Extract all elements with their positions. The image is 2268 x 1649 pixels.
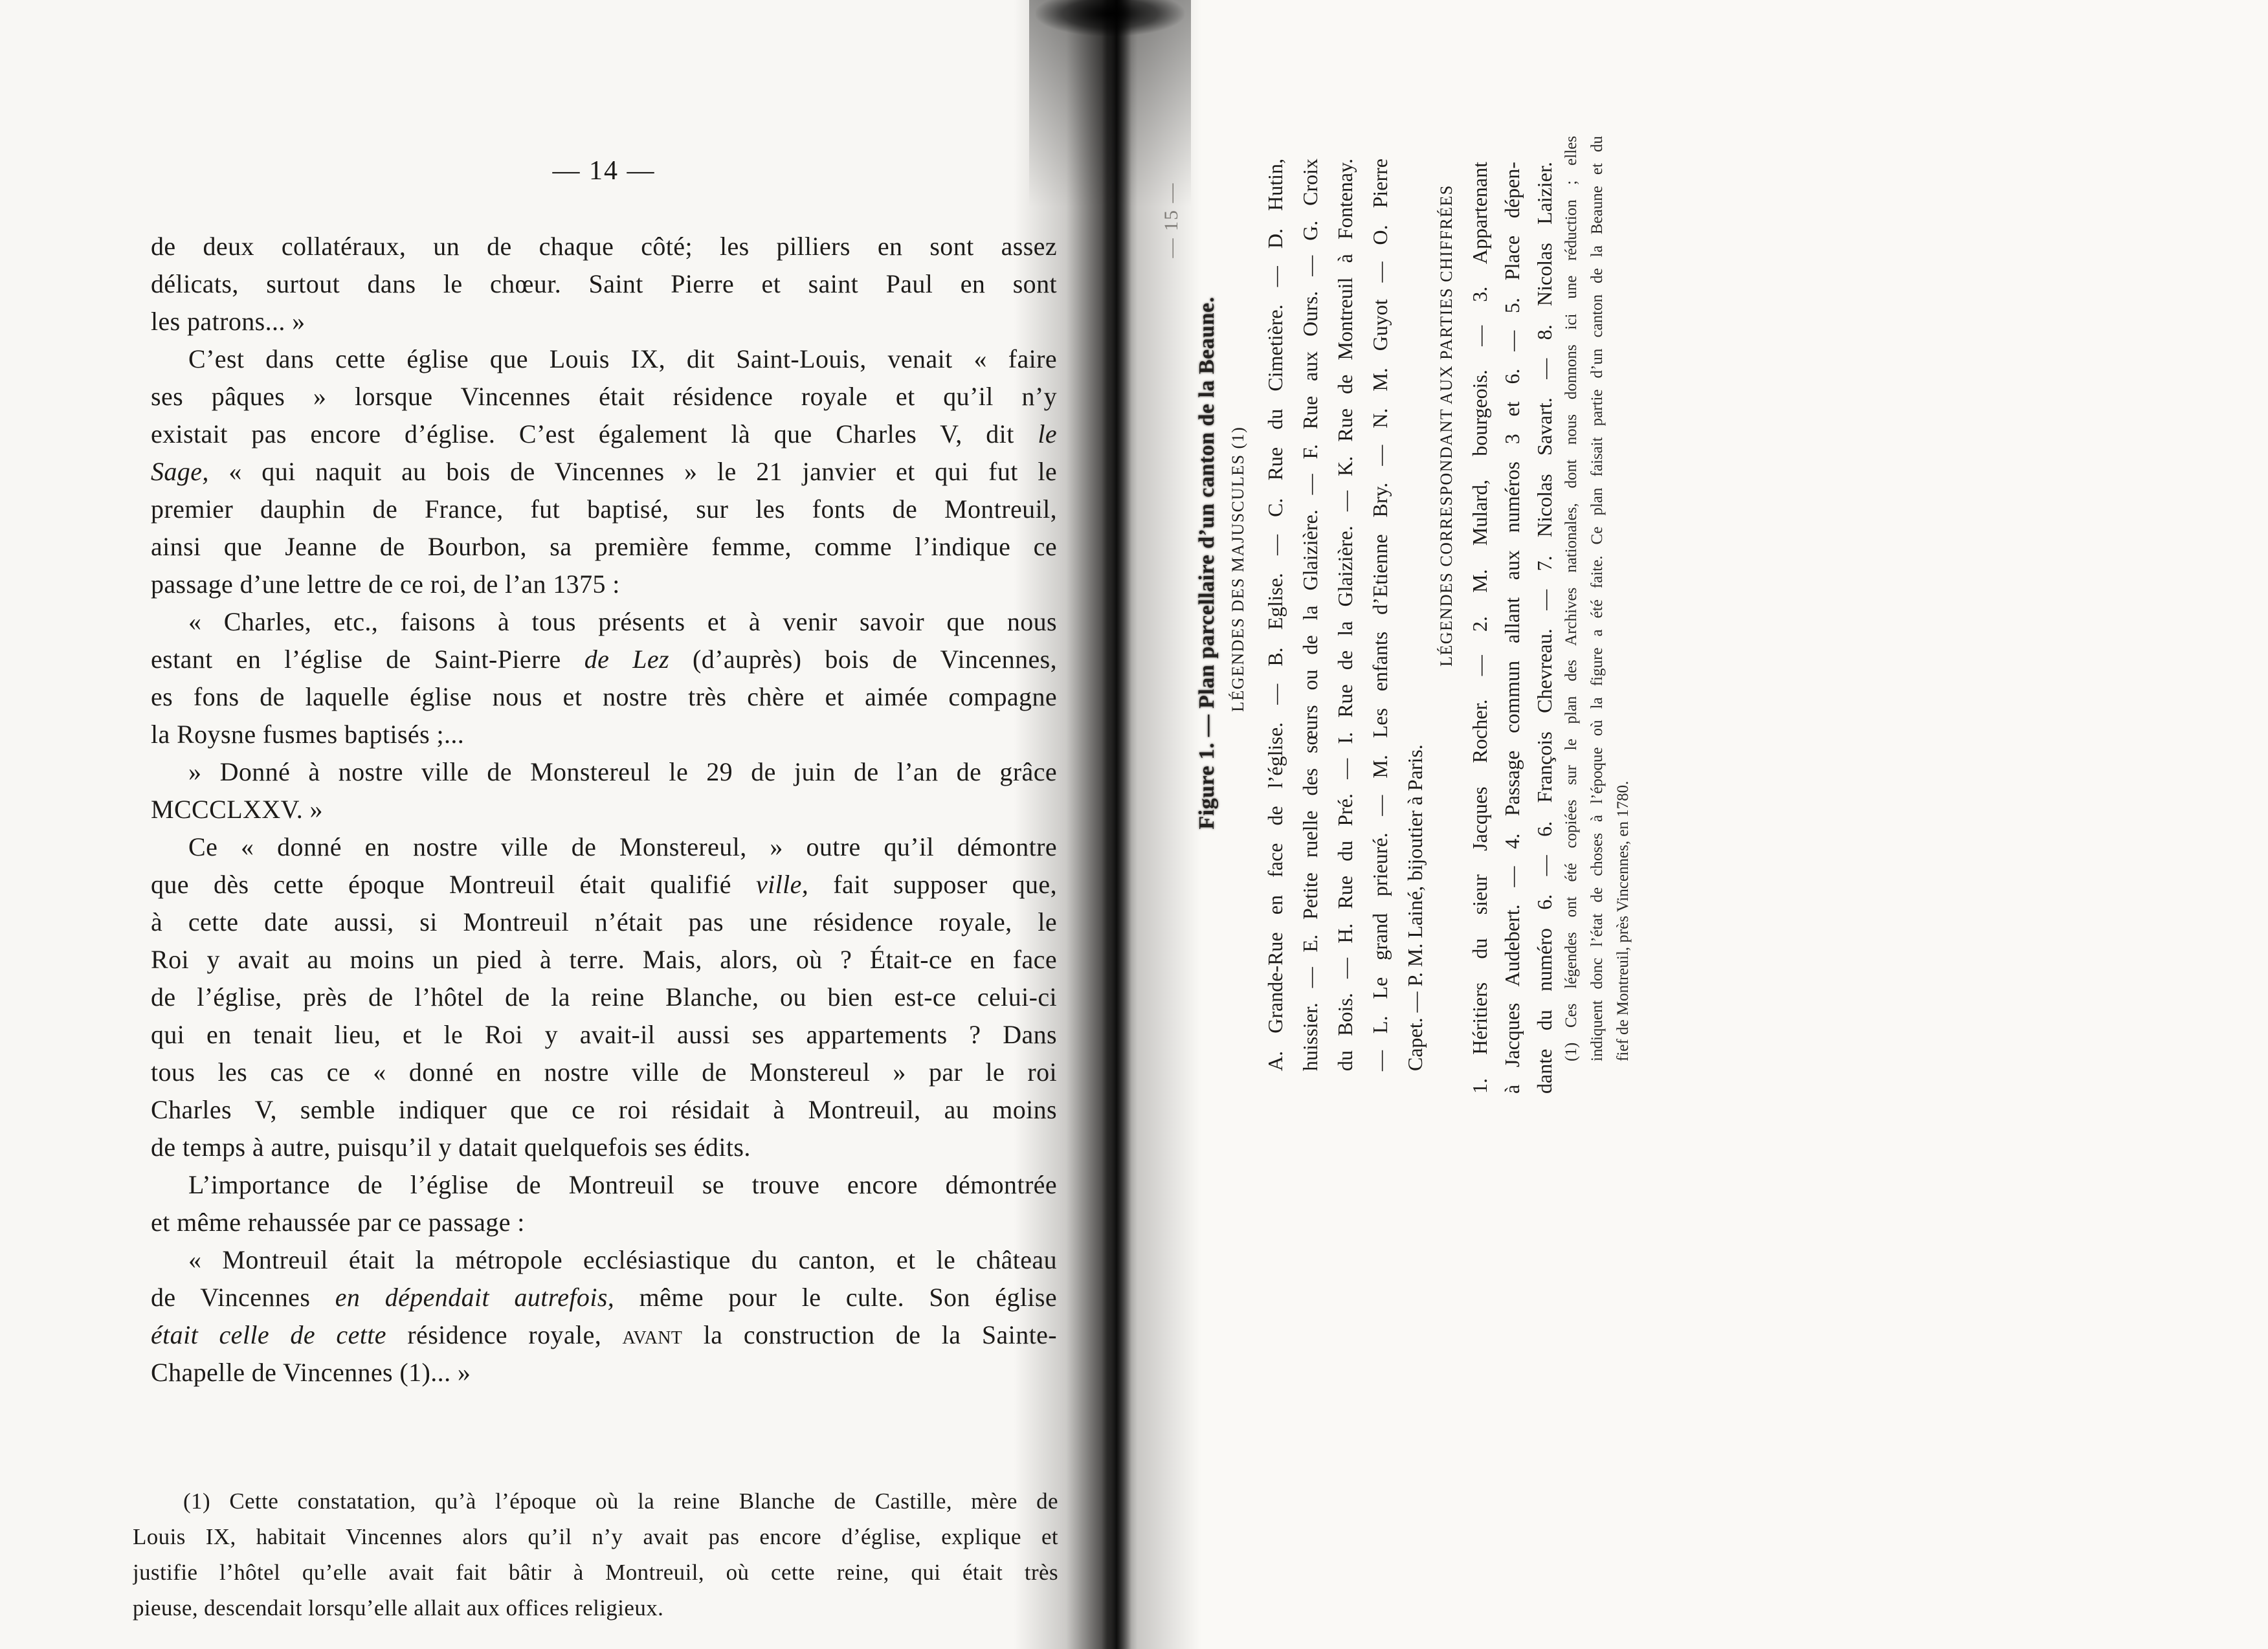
text-line: « Charles, etc., faisons à tous présents… (151, 603, 1057, 641)
legend-majuscules-line: Capet. — P. M. Lainé, bijoutier à Paris. (1403, 159, 1427, 1071)
text-line: de temps à autre, puisqu’il y datait que… (151, 1129, 1057, 1166)
figure-caption: Figure 1. — Plan parcellaire d’un canton… (1195, 256, 1219, 870)
legend-majuscules-line: — L. Le grand prieuré. — M. Les enfants … (1368, 159, 1392, 1071)
text-line: MCCCLXXV. » (151, 791, 1057, 828)
left-page: — 14 — de deux collatéraux, un de chaque… (0, 0, 1100, 1649)
text-line: Roi y avait au moins un pied à terre. Ma… (151, 941, 1057, 979)
figure-footnote-line: fief de Montreuil, près Vincennes, en 17… (1614, 136, 1632, 1061)
text-line: C’est dans cette église que Louis IX, di… (151, 340, 1057, 378)
legend-chiffres-heading: LÉGENDES CORRESPONDANT AUX PARTIES CHIFF… (1437, 239, 1456, 667)
text-line: pieuse, descendait lorsqu’elle allait au… (133, 1590, 1058, 1626)
text-line: qui en tenait lieu, et le Roi y avait-il… (151, 1016, 1057, 1054)
text-line: était celle de cette résidence royale, a… (151, 1316, 1057, 1354)
legend-chiffres-line: dante du numéro 6. — 6. François Chevrea… (1533, 162, 1557, 1094)
text-line: justifie l’hôtel qu’elle avait fait bâti… (133, 1555, 1058, 1590)
text-line: ainsi que Jeanne de Bourbon, sa première… (151, 528, 1057, 566)
text-line: les patrons... » (151, 303, 1057, 340)
legend-chiffres-line: 1. Héritiers du sieur Jacques Rocher. — … (1468, 162, 1492, 1094)
figure-footnote-line: indiquent donc l’état de choses à l’époq… (1588, 136, 1606, 1061)
page-14-number: — 14 — (151, 155, 1057, 186)
text-line: existait pas encore d’église. C’est égal… (151, 415, 1057, 453)
text-line: de l’église, près de l’hôtel de la reine… (151, 979, 1057, 1016)
page-14-text: de deux collatéraux, un de chaque côté; … (151, 228, 1057, 1391)
text-line: premier dauphin de France, fut baptisé, … (151, 491, 1057, 528)
text-line: à cette date aussi, si Montreuil n’était… (151, 903, 1057, 941)
text-line: ses pâques » lorsque Vincennes était rés… (151, 378, 1057, 415)
text-line: Chapelle de Vincennes (1)... » (151, 1354, 1057, 1391)
text-line: » Donné à nostre ville de Monstereul le … (151, 753, 1057, 791)
book-scan: — 14 — de deux collatéraux, un de chaque… (0, 0, 2268, 1649)
legend-majuscules-line: du Bois. — H. Rue du Pré. — I. Rue de la… (1333, 159, 1357, 1071)
text-line: L’importance de l’église de Montreuil se… (151, 1166, 1057, 1204)
legend-majuscules-line: A. Grande-Rue en face de l’église. — B. … (1263, 159, 1287, 1071)
text-line: et même rehaussée par ce passage : (151, 1204, 1057, 1241)
legend-majuscules-heading: LÉGENDES DES MAJUSCULES (1) (1228, 434, 1248, 712)
page-14-footnote: (1) Cette constatation, qu’à l’époque où… (133, 1483, 1058, 1626)
text-line: délicats, surtout dans le chœur. Saint P… (151, 265, 1057, 303)
text-line: estant en l’église de Saint-Pierre de Le… (151, 641, 1057, 678)
text-line: « Montreuil était la métropole ecclésias… (151, 1241, 1057, 1279)
text-line: de Vincennes en dépendait autrefois, mêm… (151, 1279, 1057, 1316)
page-15-number: — 15 — (1161, 162, 1183, 278)
text-line: tous les cas ce « donné en nostre ville … (151, 1054, 1057, 1091)
figure-footnote-line: (1) Ces légendes ont été copiées sur le … (1562, 136, 1581, 1061)
text-line: que dès cette époque Montreuil était qua… (151, 866, 1057, 903)
text-line: (1) Cette constatation, qu’à l’époque où… (133, 1483, 1058, 1519)
text-line: Louis IX, habitait Vincennes alors qu’il… (133, 1519, 1058, 1555)
text-line: Ce « donné en nostre ville de Monstereul… (151, 828, 1057, 866)
text-line: la Roysne fusmes baptisés ;... (151, 716, 1057, 753)
text-line: passage d’une lettre de ce roi, de l’an … (151, 566, 1057, 603)
text-line: de deux collatéraux, un de chaque côté; … (151, 228, 1057, 265)
legend-chiffres-line: à Jacques Audebert. — 4. Passage commun … (1500, 162, 1524, 1094)
text-line: es fons de laquelle église nous et nostr… (151, 678, 1057, 716)
text-line: Charles V, semble indiquer que ce roi ré… (151, 1091, 1057, 1129)
text-line: Sage, « qui naquit au bois de Vincennes … (151, 453, 1057, 491)
legend-majuscules-line: huissier. — E. Petite ruelle des sœurs o… (1298, 159, 1322, 1071)
